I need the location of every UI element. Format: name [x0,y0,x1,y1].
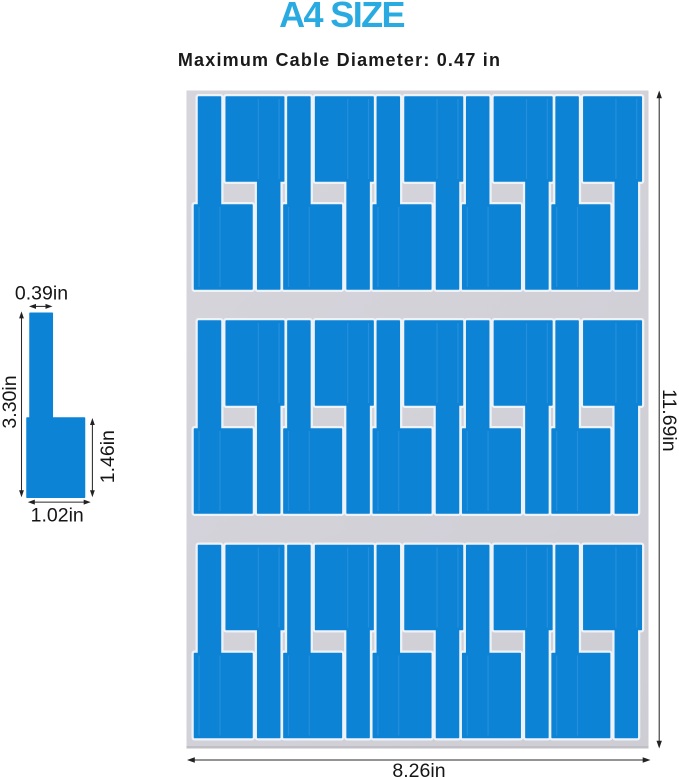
svg-text:11.69in: 11.69in [658,389,679,452]
svg-text:1.46in: 1.46in [97,430,119,483]
svg-text:0.39in: 0.39in [15,282,68,304]
svg-text:3.30in: 3.30in [0,375,21,428]
svg-text:8.26in: 8.26in [392,760,445,777]
svg-text:1.02in: 1.02in [31,505,84,527]
